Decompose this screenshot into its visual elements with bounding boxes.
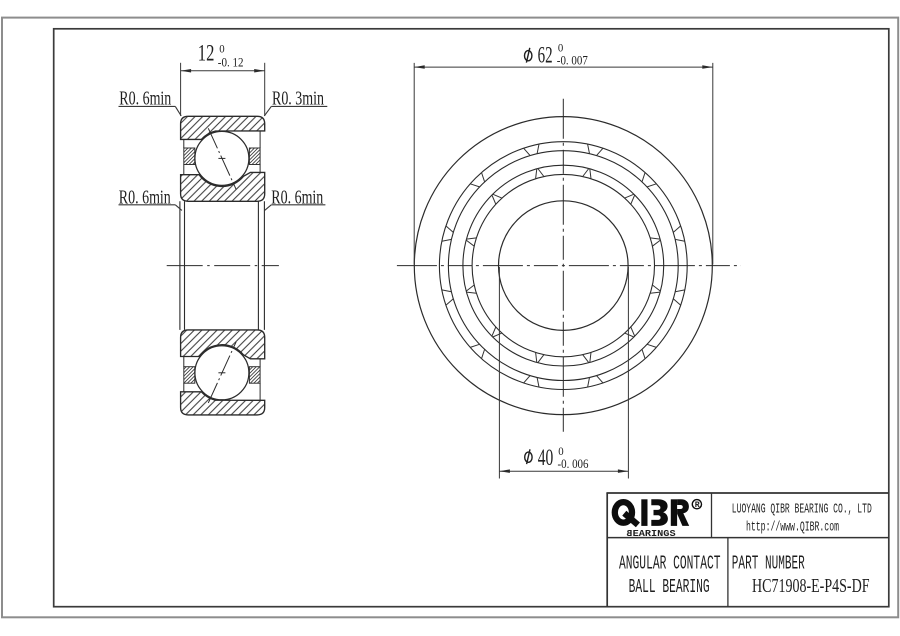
svg-text:LUOYANG QIBR BEARING CO., LTD: LUOYANG QIBR BEARING CO., LTD (732, 503, 872, 518)
svg-text:http://www.QIBR.com: http://www.QIBR.com (746, 520, 839, 535)
svg-text:40: 40 (538, 445, 554, 470)
svg-text:12: 12 (198, 41, 215, 66)
svg-text:ANGULAR CONTACT: ANGULAR CONTACT (619, 552, 721, 574)
svg-text:B: B (626, 528, 632, 539)
svg-text:-0. 007: -0. 007 (557, 53, 588, 68)
svg-text:-0. 006: -0. 006 (558, 456, 589, 471)
svg-text:62: 62 (538, 43, 553, 68)
svg-text:PART NUMBER: PART NUMBER (732, 552, 805, 574)
svg-text:-0. 12: -0. 12 (218, 54, 244, 69)
svg-text:BALL BEARING: BALL BEARING (629, 576, 710, 598)
svg-text:R: R (695, 501, 700, 510)
svg-text:EARINGS: EARINGS (633, 528, 676, 539)
svg-text:HC71908-E-P4S-DF: HC71908-E-P4S-DF (752, 575, 870, 597)
